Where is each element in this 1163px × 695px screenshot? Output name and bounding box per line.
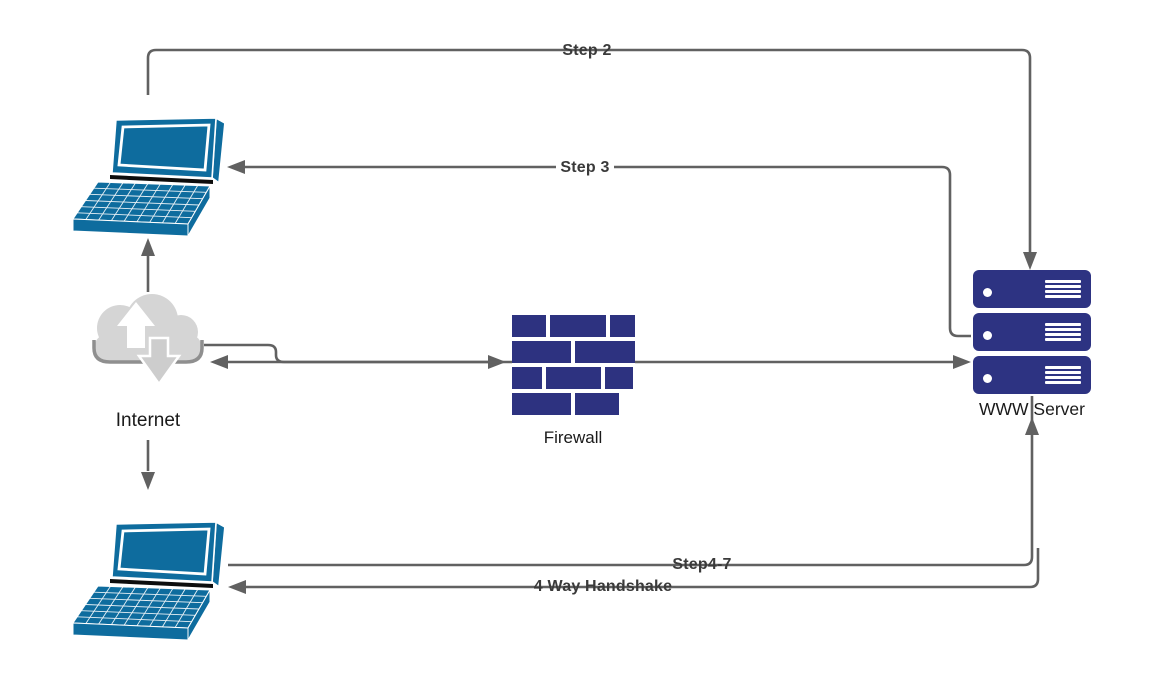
step3-edge-label-text: Step 3 [556,159,613,176]
firewall-row [512,367,635,389]
step3-edge-label: Step 3 [535,159,635,177]
firewall-brick [546,367,601,389]
server-unit [973,270,1091,308]
firewall-row [512,393,635,415]
firewall-brick [512,393,571,415]
www-server-label: WWW Server [962,399,1102,419]
arrowhead-down-icon [141,472,155,490]
edge-internet-laptop-top[interactable] [141,238,155,292]
step2-edge-label: Step 2 [537,42,637,60]
server-vents-icon [1045,280,1081,298]
firewall-label: Firewall [513,428,633,448]
laptop-icon [66,94,231,239]
server-led-icon [983,288,992,297]
firewall-brick [512,315,546,337]
edge-internet-firewall[interactable] [204,345,506,369]
server-vents-icon [1045,323,1081,341]
laptop-bottom-node[interactable] [66,498,231,648]
server-vents-icon [1045,366,1081,384]
firewall-row [512,315,635,337]
firewall-brick [575,393,619,415]
edge-internet-laptop-bottom[interactable] [141,440,155,490]
server-led-icon [983,374,992,383]
firewall-brick [550,315,606,337]
internet-label: Internet [88,411,208,431]
edge-step3[interactable] [227,160,971,336]
firewall-brick [605,367,633,389]
firewall-brick [512,367,542,389]
laptop-top-node[interactable] [66,94,231,244]
cloud-icon [84,288,212,398]
server-unit [973,356,1091,394]
arrowhead-left-icon [210,355,228,369]
arrowhead-down-icon [1023,252,1037,270]
firewall-brick [512,341,571,363]
laptop-icon [66,498,231,643]
firewall-row [512,341,635,363]
server-led-icon [983,331,992,340]
server-unit [973,313,1091,351]
firewall-brick [575,341,635,363]
firewall-brick [610,315,635,337]
firewall-node[interactable] [512,315,635,415]
edge-step4-7[interactable] [228,396,1039,565]
internet-cloud-node[interactable] [84,288,212,403]
diagram-canvas: Internet Firewall [0,0,1163,695]
arrowhead-up-icon [1025,417,1039,435]
www-server-node[interactable] [973,270,1091,394]
handshake-edge-label: 4 Way Handshake [498,578,708,596]
step4-7-edge-label: Step4-7 [647,556,757,574]
arrowhead-right-icon [953,355,971,369]
